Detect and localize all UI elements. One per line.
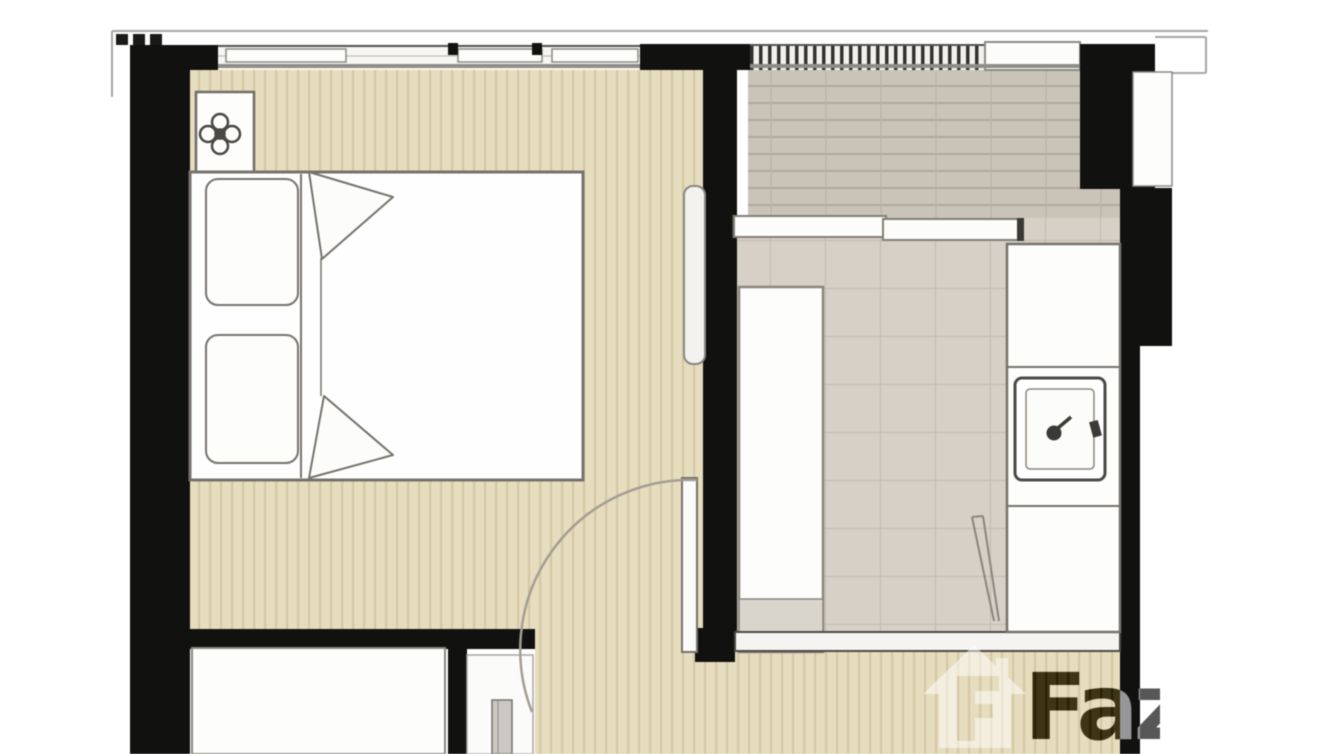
balcony-wall-inner-edge [748,64,1120,68]
sliding-door-panel [883,219,1023,240]
pillow [206,335,298,463]
wall-bathroom-nook [448,648,467,754]
wall-divider [703,44,737,634]
wall-left [130,45,190,754]
exterior-hatch-marks [116,34,162,45]
pillow [206,179,298,305]
wall-top-left [130,45,218,70]
floor-plan-page: Faz [0,0,1342,754]
living-bottom-wall [735,632,1120,651]
window-post [448,43,458,55]
bedroom-door-leaf [682,478,697,652]
watermark-text: Faz [1024,654,1184,754]
kitchen-sink [1015,378,1105,480]
wall-niche [1133,72,1172,186]
bathroom-fixture [492,700,512,754]
sliding-door [732,215,1024,241]
sofa [739,287,823,652]
balcony-floor [748,68,1120,218]
wardrobe [192,648,445,754]
ac-wall-panel [684,186,705,364]
kitchen-counter [1007,244,1120,632]
floor-plan-drawing: Faz [0,0,1342,754]
bedside-table [196,92,254,172]
wall-bedroom-bottom [190,629,535,649]
double-bed [190,172,583,480]
sliding-door-panel [734,216,886,237]
window-post [532,43,542,55]
bedroom-wall-inner-edge [190,64,703,68]
wall-divider-foot [695,628,735,662]
